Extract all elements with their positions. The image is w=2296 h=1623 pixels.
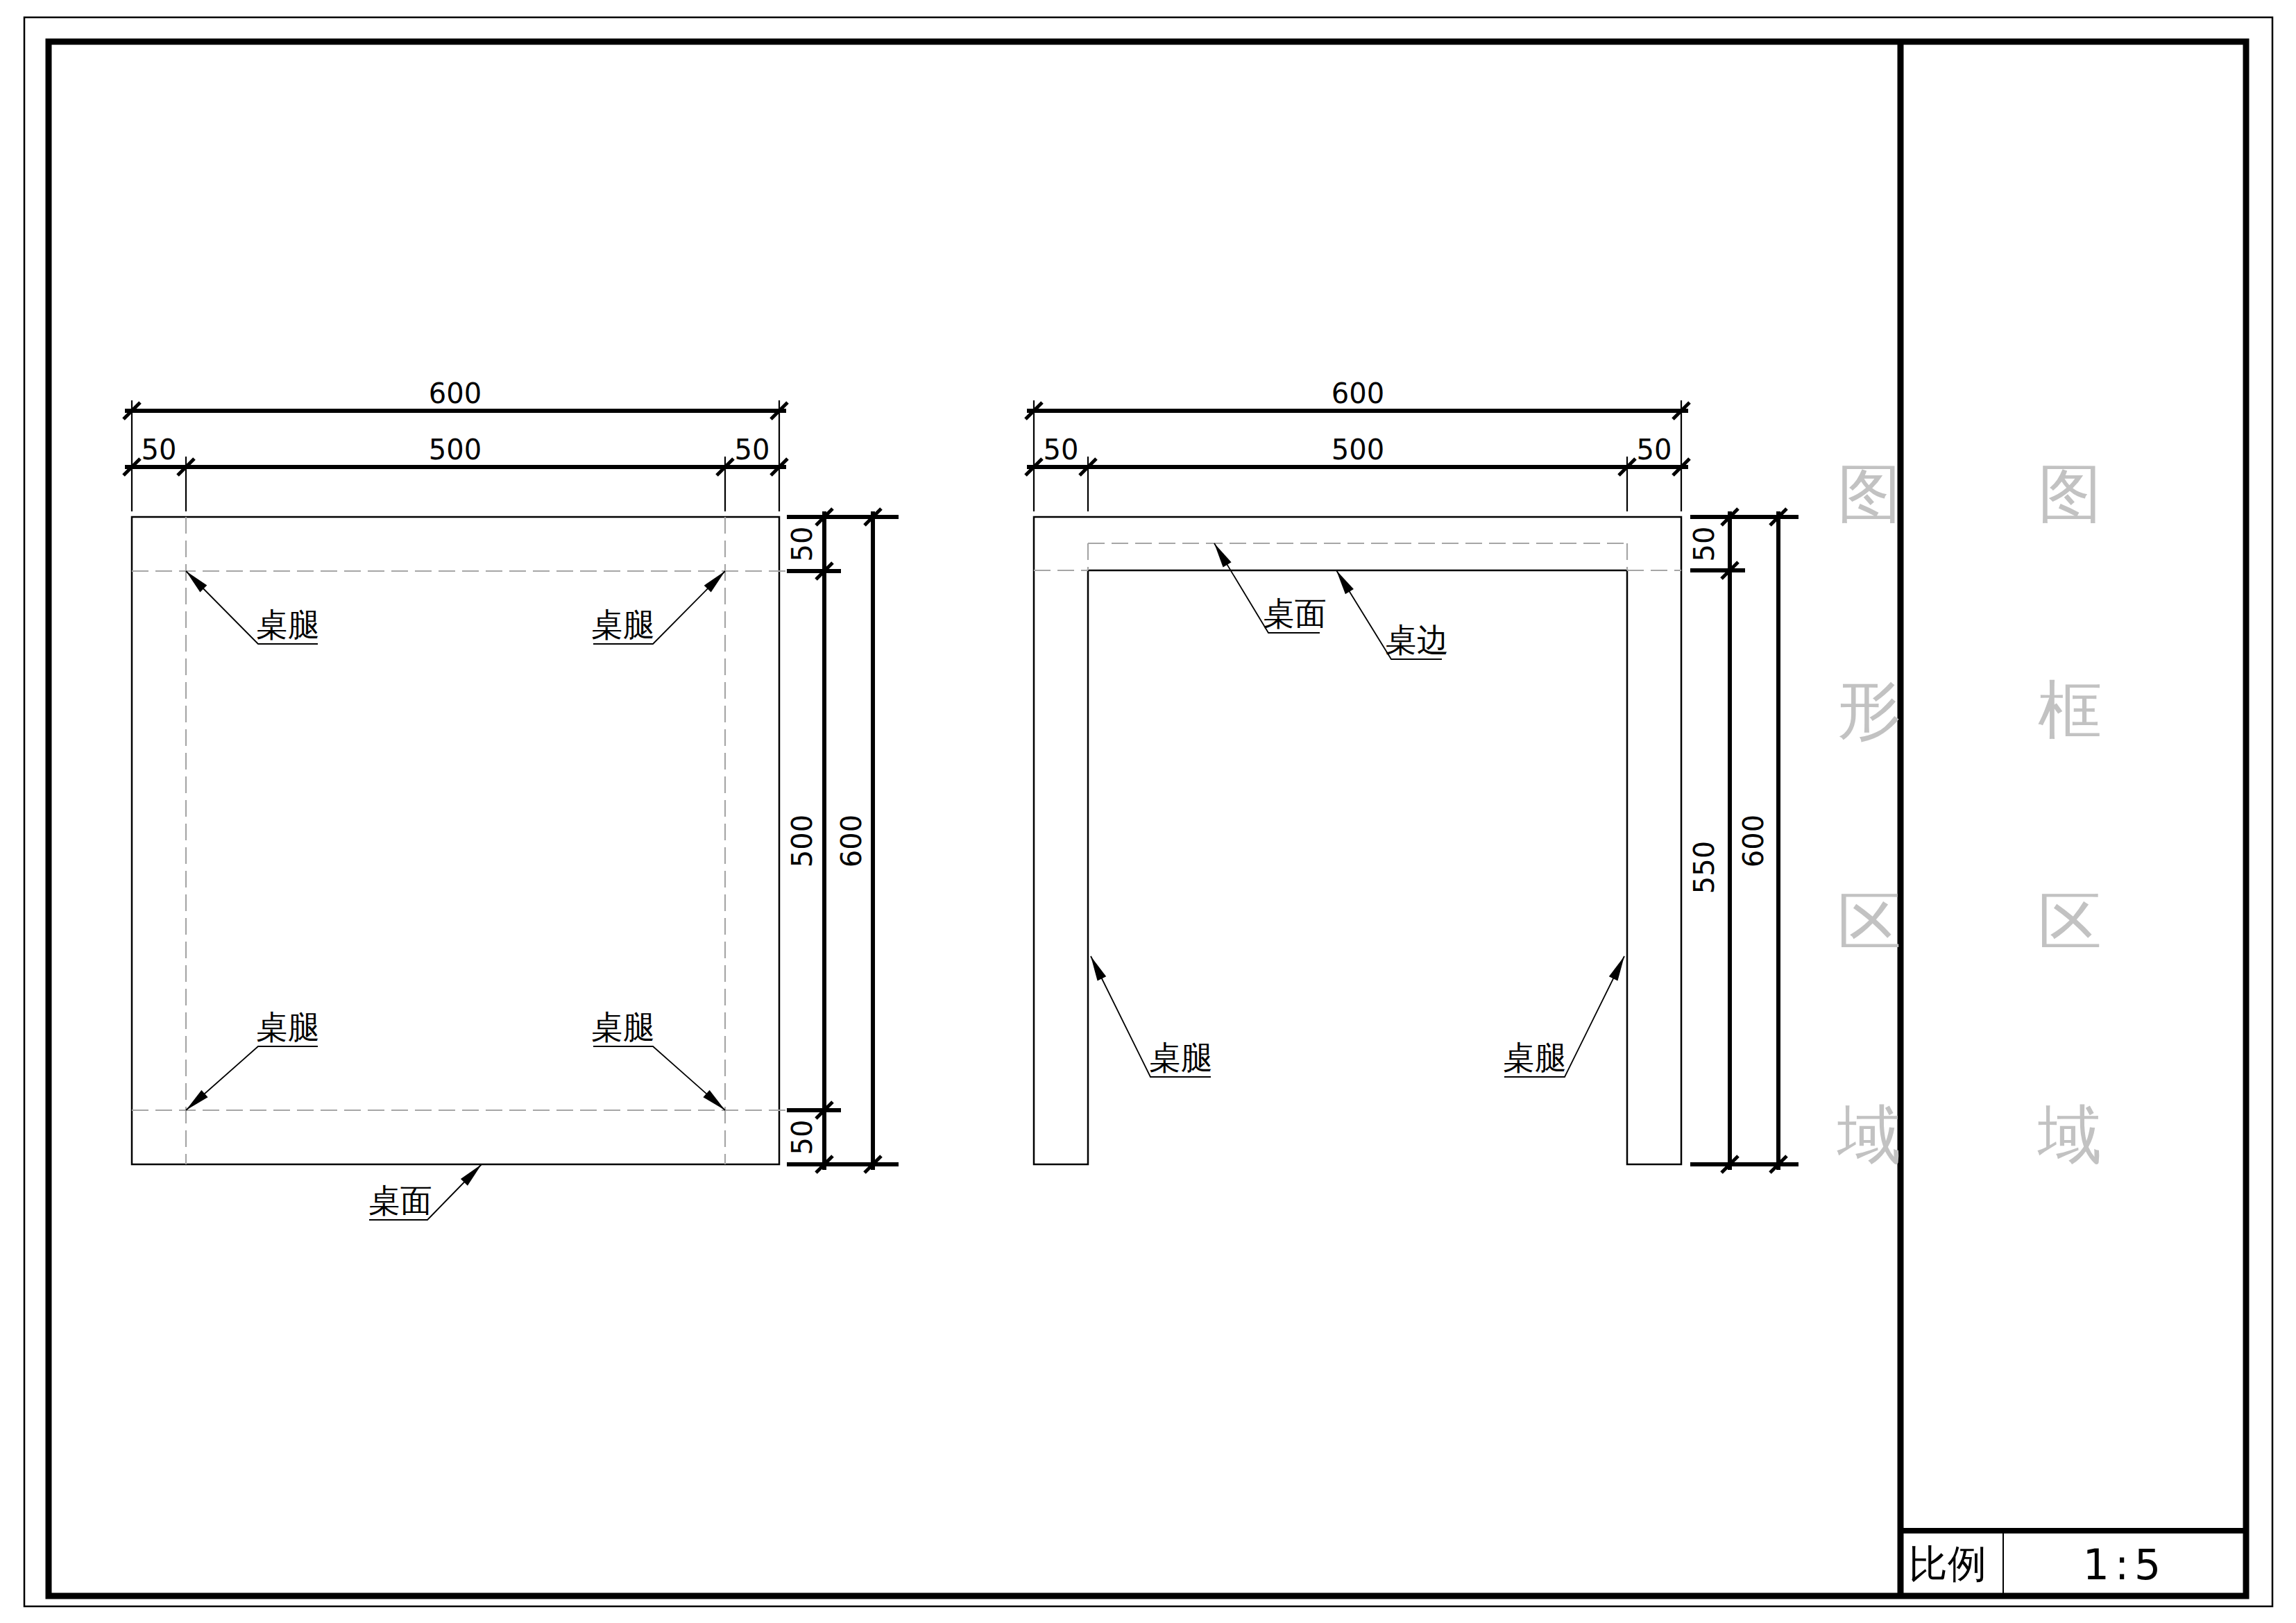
dim-text: 50 xyxy=(142,434,177,466)
plan-hidden-leg-lines xyxy=(132,517,808,1164)
dim-text: 50 xyxy=(1044,434,1079,466)
dim-text: 600 xyxy=(1332,377,1384,409)
leg-label: 桌腿 xyxy=(591,606,655,643)
plan-leader-leg-top-left: 桌腿 xyxy=(186,571,320,644)
dim-text: 500 xyxy=(1332,434,1384,466)
plan-leader-leg-bottom-right: 桌腿 xyxy=(591,1008,725,1110)
watermark-column-frame: 图 框 区 域 xyxy=(2037,457,2102,1172)
plan-dimension-lines xyxy=(125,411,899,1170)
front-leader-leg-right: 桌腿 xyxy=(1503,956,1624,1077)
watermark-char: 形 xyxy=(1837,673,1901,747)
front-hidden-lines xyxy=(1034,543,1681,570)
dim-text: 600 xyxy=(835,815,867,867)
plan-leader-tabletop: 桌面 xyxy=(368,1164,482,1220)
watermark-char: 图 xyxy=(1837,457,1901,531)
dim-text: 50 xyxy=(735,434,770,466)
plan-leader-leg-top-right: 桌腿 xyxy=(591,571,725,644)
front-view: 600 50 500 50 50 550 600 桌面 桌边 桌腿 桌腿 xyxy=(1026,377,1798,1173)
leg-label: 桌腿 xyxy=(1503,1039,1567,1076)
watermark-char: 框 xyxy=(2038,673,2102,747)
watermark-char: 区 xyxy=(1837,885,1901,959)
dim-text: 50 xyxy=(786,1120,818,1155)
dim-text: 50 xyxy=(786,527,818,562)
table-edge-label: 桌边 xyxy=(1385,621,1449,658)
dim-text: 50 xyxy=(1637,434,1672,466)
dim-text: 600 xyxy=(1737,815,1769,867)
tabletop-label: 桌面 xyxy=(368,1182,432,1219)
dim-text: 500 xyxy=(429,434,482,466)
dim-text: 50 xyxy=(1688,527,1720,562)
watermark-char: 域 xyxy=(1837,1098,1901,1172)
watermark-column-graphics: 图 形 区 域 xyxy=(1837,457,1901,1172)
cad-canvas: 图 形 区 域 图 框 区 域 比例 1:5 600 50 500 50 50 … xyxy=(0,0,2296,1623)
scale-value: 1:5 xyxy=(2083,1540,2167,1589)
plan-view: 600 50 500 50 50 500 50 600 桌腿 桌腿 桌腿 桌腿 xyxy=(124,377,899,1220)
plan-leader-leg-bottom-left: 桌腿 xyxy=(186,1008,320,1110)
leg-label: 桌腿 xyxy=(256,606,320,643)
front-dim-ticks xyxy=(1026,402,1787,1173)
inner-border xyxy=(49,42,2246,1596)
front-leader-leg-left: 桌腿 xyxy=(1091,956,1213,1077)
dim-text: 500 xyxy=(786,815,818,867)
front-dimension-lines xyxy=(1027,411,1798,1170)
plan-dim-ticks xyxy=(124,402,881,1173)
drawing-sheet: 图 形 区 域 图 框 区 域 比例 1:5 600 50 500 50 50 … xyxy=(0,0,2296,1623)
watermark-char: 域 xyxy=(2037,1098,2102,1172)
watermark-char: 图 xyxy=(2038,457,2102,531)
title-block: 比例 1:5 xyxy=(1909,1540,2166,1589)
front-leader-table-edge: 桌边 xyxy=(1336,570,1449,659)
dim-text: 550 xyxy=(1688,841,1720,894)
outer-border xyxy=(24,17,2272,1606)
front-leader-tabletop: 桌面 xyxy=(1214,543,1327,633)
watermark-char: 区 xyxy=(2038,885,2102,959)
dim-text: 600 xyxy=(429,377,482,409)
front-table-outline xyxy=(1034,517,1681,1164)
leg-label: 桌腿 xyxy=(256,1008,320,1046)
leg-label: 桌腿 xyxy=(1149,1039,1213,1076)
scale-label: 比例 xyxy=(1909,1541,1987,1586)
leg-label: 桌腿 xyxy=(591,1008,655,1046)
sheet-frame xyxy=(24,17,2272,1606)
tabletop-label: 桌面 xyxy=(1263,595,1327,632)
